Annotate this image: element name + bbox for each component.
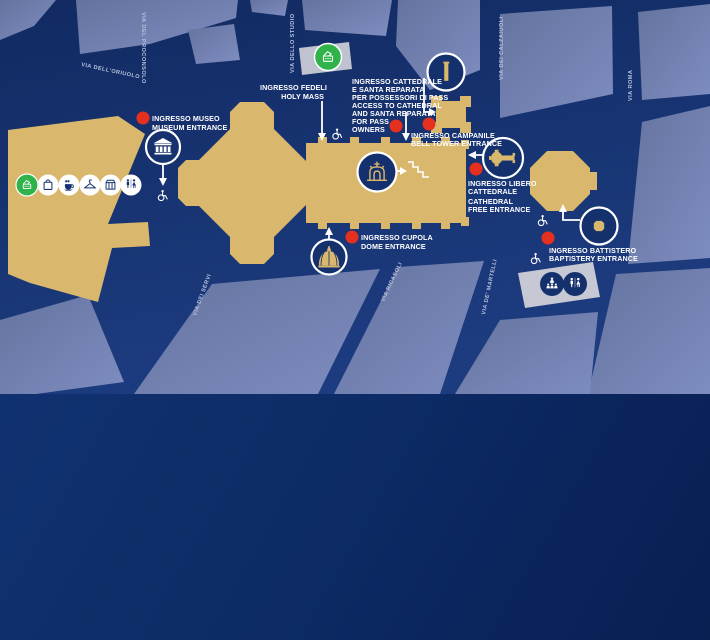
map-canvas: VIA DELL'ORIUOLO VIA DEL PROCONSOLO VIA …	[0, 0, 710, 394]
svg-text:BELL TOWER ENTRANCE: BELL TOWER ENTRANCE	[411, 139, 502, 148]
svg-text:OWNERS: OWNERS	[352, 125, 385, 134]
bell-tower-entrance-label: INGRESSO CAMPANILE BELL TOWER ENTRANCE	[411, 131, 502, 148]
pass-entrance-dot	[390, 120, 403, 133]
duomo-complex-map: VIA DELL'ORIUOLO VIA DEL PROCONSOLO VIA …	[0, 0, 710, 640]
svg-text:INGRESSO FEDELI: INGRESSO FEDELI	[260, 83, 327, 92]
dome-entrance-label: INGRESSO CUPOLA DOME ENTRANCE	[361, 233, 433, 251]
street-studio: VIA DELLO STUDIO	[290, 13, 296, 73]
street-proconsolo: VIA DEL PROCONSOLO	[140, 12, 146, 84]
svg-text:HOLY MASS: HOLY MASS	[281, 92, 324, 101]
museum-entrance-dot	[137, 112, 150, 125]
santa-reparata-marker	[358, 153, 397, 192]
legend: CATTEDRALECATHEDRAL CUPOLADOME SANTA REP…	[0, 394, 710, 640]
dome-marker	[312, 240, 347, 275]
svg-text:BAPTISTERY ENTRANCE: BAPTISTERY ENTRANCE	[549, 254, 638, 263]
museum-entrance-label: INGRESSO MUSEO MUSEUM ENTRANCE	[152, 114, 227, 132]
baptistery-marker	[581, 208, 618, 245]
bell-tower-entrance-dot	[423, 118, 436, 131]
svg-text:INGRESSO MUSEO: INGRESSO MUSEO	[152, 114, 220, 123]
svg-text:FREE ENTRANCE: FREE ENTRANCE	[468, 205, 531, 214]
cathedral-entrance-dot	[470, 163, 483, 176]
street-calzaiuoli: VIA DEI CALZAIUOLI	[499, 16, 505, 80]
dome-entrance-dot	[346, 231, 359, 244]
baptistery-entrance-label: INGRESSO BATTISTERO BAPTISTERY ENTRANCE	[549, 246, 638, 263]
map-area: VIA DELL'ORIUOLO VIA DEL PROCONSOLO VIA …	[0, 0, 710, 394]
svg-text:DOME ENTRANCE: DOME ENTRANCE	[361, 242, 426, 251]
baptistery-entrance-dot	[542, 232, 555, 245]
ticket-office-marker	[315, 44, 342, 71]
street-roma: VIA ROMA	[628, 70, 634, 101]
baptistery-icon	[594, 221, 604, 231]
svg-text:CATTEDRALE: CATTEDRALE	[468, 187, 517, 196]
svg-text:MUSEUM ENTRANCE: MUSEUM ENTRANCE	[152, 123, 227, 132]
svg-text:INGRESSO CUPOLA: INGRESSO CUPOLA	[361, 233, 433, 242]
